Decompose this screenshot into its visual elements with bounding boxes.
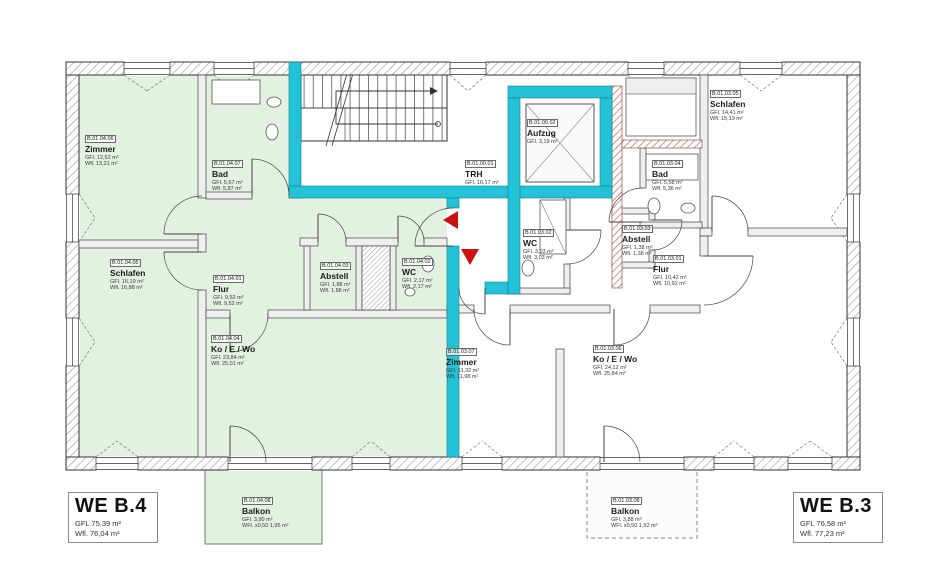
door-swing-arc [712, 196, 748, 232]
room-name: WC [402, 268, 433, 278]
room-name: Aufzug [527, 129, 558, 139]
core-wall [447, 198, 459, 208]
bed-pillow [626, 78, 696, 94]
window-swing [468, 75, 486, 91]
room-area-wfl: Wfl. 25,84 m² [593, 371, 637, 377]
room-area-wfl: Wfl. 25,01 m² [211, 361, 255, 367]
room-area-wfl: Wfl. 16,88 m² [110, 285, 145, 291]
apartment-gfl: GFL 75,39 m² [75, 519, 147, 528]
apartment-wfl: Wfl. 77,23 m² [800, 529, 872, 538]
interior-wall [700, 75, 708, 228]
bathtub [212, 80, 260, 104]
apartment-label-we-b3: WE B.3 GFL 76,58 m² Wfl. 77,23 m² [793, 492, 883, 543]
floor-plan-page: B.01.04.06 Zimmer GFl. 12,52 m² Wfl. 13,… [0, 0, 926, 577]
room-name: Abstell [320, 272, 351, 282]
interior-wall [556, 349, 564, 457]
room-name: TRH [465, 170, 499, 180]
room-label-abstell-b4: B.01.04.03 Abstell GFl. 1,88 m² Wfl. 1,8… [320, 254, 351, 295]
entrance-arrow-down [461, 249, 479, 265]
window-swing [761, 75, 782, 91]
room-number: B.01.04.06 [85, 135, 116, 143]
room-number: B.01.03.02 [523, 229, 554, 237]
interior-wall [346, 238, 398, 246]
room-number: B.01.04.07 [212, 160, 243, 168]
interior-wall [700, 228, 712, 236]
door-swing-arc [567, 230, 601, 264]
room-label-ko-e-wo-b4: B.01.04.04 Ko / E / Wo GFl. 23,84 m² Wfl… [211, 327, 255, 368]
room-number: B.01.03.05 [710, 90, 741, 98]
interior-wall [700, 236, 708, 256]
interior-wall [748, 228, 847, 236]
room-name: Zimmer [446, 358, 479, 368]
room-label-zimmer-b3: B.01.03.07 Zimmer GFl. 11,32 m² Wfl. 11,… [446, 340, 479, 381]
room-area-wfl: Wfl. 5,87 m² [212, 186, 243, 192]
interior-wall [304, 246, 310, 310]
room-name: Ko / E / Wo [211, 345, 255, 355]
room-name: Zimmer [85, 145, 119, 155]
room-area-wfl: Wfl. 9,52 m² [213, 301, 244, 307]
room-number: B.01.04.01 [213, 275, 244, 283]
room-area-wfl: Wfl. 13,21 m² [85, 161, 119, 167]
room-name: Abstell [622, 235, 653, 245]
room-area-wfl: Wfl. 11,98 m² [446, 374, 479, 380]
masonry-wall [612, 86, 622, 288]
room-number: B.01.04.02 [402, 258, 433, 266]
room-number: B.01.04.04 [211, 335, 242, 343]
room-area-wfl: Wfl. 1,38 m² [622, 251, 653, 257]
room-label-aufzug: B.01.00.02 Aufzug GFl. 3,19 m² [527, 111, 558, 145]
room-area-wfl: Wfl. 2,17 m² [402, 284, 433, 290]
room-name: Flur [213, 285, 244, 295]
outer-wall [66, 75, 79, 457]
room-number: B.01.03.04 [652, 160, 683, 168]
toilet [522, 260, 534, 276]
room-label-balkon-b3: B.01.03.08 Balkon GFl. 3,88 m² WFl. x0,5… [611, 489, 657, 530]
apartment-gfl: GFL 76,58 m² [800, 519, 872, 528]
window-swing [734, 441, 754, 457]
room-label-flur-b3: B.01.03.01 Flur GFl. 10,42 m² Wfl. 10,92… [653, 247, 687, 288]
shaft [362, 246, 390, 310]
stair-flight-lower [345, 108, 447, 141]
room-label-bad-b4: B.01.04.07 Bad GFl. 5,67 m² Wfl. 5,87 m² [212, 152, 243, 193]
room-label-abstell-b3: B.01.03.03 Abstell GFl. 1,38 m² Wfl. 1,3… [622, 217, 653, 258]
door-swing-arc [474, 309, 510, 345]
sink [681, 203, 695, 213]
window-swing [462, 441, 482, 457]
interior-wall [198, 75, 206, 198]
core-wall [485, 282, 508, 294]
apartment-name: WE B.4 [75, 495, 147, 518]
room-name: WC [523, 239, 554, 249]
door-swing-arc [704, 256, 753, 305]
core-wall [289, 186, 612, 198]
room-label-schlafen-b4: B.01.04.05 Schlafen GFl. 16,19 m² Wfl. 1… [110, 251, 145, 292]
room-area-gfl: GFl. 16,17 m² [465, 180, 499, 186]
core-wall [508, 98, 520, 294]
sink [267, 97, 281, 107]
room-label-trh: B.01.00.01 TRH GFl. 16,17 m² [465, 152, 499, 186]
room-name: Bad [212, 170, 243, 180]
room-area-wfl: WFl. x0,50 1,92 m² [611, 523, 657, 529]
room-number: B.01.03.07 [446, 348, 477, 356]
masonry-wall [622, 140, 702, 148]
room-name: Ko / E / Wo [593, 355, 637, 365]
interior-wall [510, 305, 610, 313]
interior-wall [640, 148, 646, 188]
room-number: B.01.00.01 [465, 160, 496, 168]
room-number: B.01.04.05 [110, 259, 141, 267]
window-swing [831, 342, 847, 366]
window-swing [788, 441, 810, 457]
room-number: B.01.03.06 [593, 345, 624, 353]
window-swing [831, 194, 847, 218]
interior-wall [650, 305, 700, 313]
window-swing [831, 318, 847, 342]
core-wall [508, 86, 612, 98]
room-label-bad-b3: B.01.03.04 Bad GFl. 5,58 m² Wfl. 5,36 m² [652, 152, 683, 193]
room-label-zimmer-b4: B.01.04.06 Zimmer GFl. 12,52 m² Wfl. 13,… [85, 127, 119, 168]
interior-wall [268, 310, 447, 318]
interior-wall [424, 238, 447, 246]
core-wall [600, 98, 612, 186]
room-label-wc-b4: B.01.04.02 WC GFl. 2,17 m² Wfl. 2,17 m² [402, 250, 433, 291]
interior-wall [79, 240, 198, 248]
stair-flight-upper [301, 75, 447, 108]
core-wall [289, 62, 301, 198]
window-swing [450, 75, 468, 91]
room-label-schlafen-b3: B.01.03.05 Schlafen GFl. 14,41 m² Wfl. 1… [710, 82, 745, 123]
room-name: Balkon [611, 507, 657, 517]
room-name: Schlafen [710, 100, 745, 110]
window-swing [810, 441, 832, 457]
interior-wall [206, 192, 252, 199]
room-area-wfl: Wfl. 1,88 m² [320, 288, 351, 294]
interior-wall [198, 234, 206, 252]
room-number: B.01.03.08 [611, 497, 642, 505]
window-swing [714, 441, 734, 457]
outer-wall [847, 75, 860, 457]
apartment-name: WE B.3 [800, 495, 872, 518]
interior-wall [356, 246, 362, 310]
room-number: B.01.04.08 [242, 497, 273, 505]
toilet [266, 124, 278, 140]
room-name: Bad [652, 170, 683, 180]
room-area-wfl: WFl. x0,50 1,95 m² [242, 523, 288, 529]
room-number: B.01.03.03 [622, 225, 653, 233]
room-label-balkon-b4: B.01.04.08 Balkon GFl. 3,90 m² WFl. x0,5… [242, 489, 288, 530]
room-area-wfl: Wfl. 5,36 m² [652, 186, 683, 192]
room-number: B.01.04.03 [320, 262, 351, 270]
interior-wall [300, 238, 318, 246]
room-label-flur-b4: B.01.04.01 Flur GFl. 9,52 m² Wfl. 9,52 m… [213, 267, 244, 308]
window-swing [482, 441, 502, 457]
room-area-wfl: Wfl. 15,19 m² [710, 116, 745, 122]
room-area-wfl: Wfl. 10,92 m² [653, 281, 687, 287]
room-label-ko-e-wo-b3: B.01.03.06 Ko / E / Wo GFl. 24,12 m² Wfl… [593, 337, 637, 378]
apartment-label-we-b4: WE B.4 GFL 75,39 m² Wfl. 76,04 m² [68, 492, 158, 543]
interior-wall [390, 246, 396, 310]
interior-wall [206, 310, 230, 318]
interior-wall [198, 290, 206, 457]
room-name: Flur [653, 265, 687, 275]
room-area-wfl: Wfl. 3,03 m² [523, 255, 554, 261]
toilet [648, 198, 660, 214]
room-number: B.01.00.02 [527, 119, 558, 127]
room-number: B.01.03.01 [653, 255, 684, 263]
room-area-gfl: GFl. 3,19 m² [527, 139, 558, 145]
room-name: Schlafen [110, 269, 145, 279]
apartment-wfl: Wfl. 76,04 m² [75, 529, 147, 538]
room-label-wc-b3: B.01.03.02 WC GFl. 3,03 m² Wfl. 3,03 m² [523, 221, 554, 262]
room-name: Balkon [242, 507, 288, 517]
